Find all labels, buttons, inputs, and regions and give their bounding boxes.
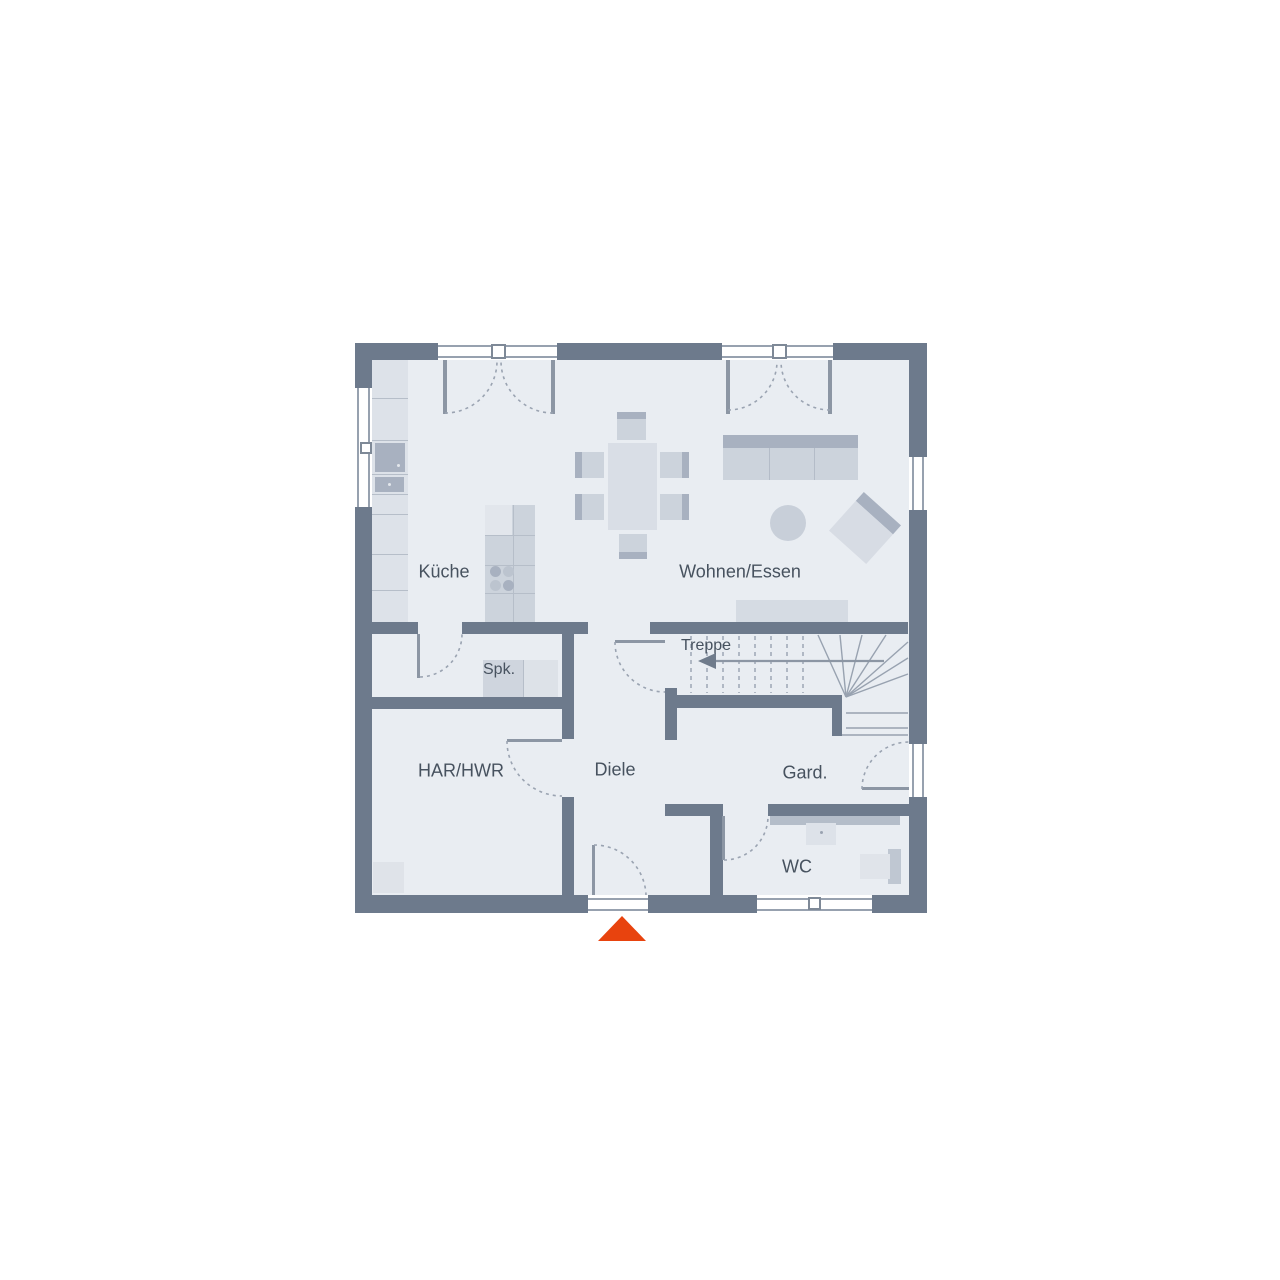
- wall-kitchen-spk-right: [462, 622, 588, 634]
- washing-machine: [373, 862, 404, 893]
- wall-top-middle: [557, 343, 722, 360]
- wall-kitchen-spk-left: [372, 622, 418, 634]
- room-label-kueche: Küche: [418, 562, 469, 583]
- room-label-spk: Spk.: [483, 661, 515, 679]
- wall-left-upper: [355, 343, 372, 388]
- wall-right-upper: [909, 343, 927, 457]
- floor-plan-page: Küche Wohnen/Essen Spk. Treppe HAR/HWR D…: [0, 0, 1280, 1280]
- washbasin-dot: [820, 831, 823, 834]
- french-door-1-jamb-right: [551, 360, 555, 414]
- room-label-wohnen-essen: Wohnen/Essen: [679, 562, 801, 583]
- room-label-wc: WC: [782, 857, 812, 878]
- wall-under-stairs: [672, 695, 832, 708]
- french-door-1-handle: [491, 344, 506, 359]
- wall-bottom-middle: [648, 895, 757, 913]
- wall-bottom-left: [355, 895, 588, 913]
- dining-chair-left-2: [575, 494, 604, 520]
- french-door-2-handle: [772, 344, 787, 359]
- dining-chair-right-1: [660, 452, 689, 478]
- gard-door-leaf: [862, 787, 909, 790]
- dining-chair-right-2: [660, 494, 689, 520]
- wall-bottom-right: [872, 895, 927, 913]
- drawer-dot: [388, 483, 391, 486]
- sofa: [723, 435, 858, 480]
- dining-chair-left-1: [575, 452, 604, 478]
- entrance-door-leaf: [592, 845, 595, 895]
- sideboard: [736, 600, 848, 622]
- cooktop-burner: [490, 566, 501, 577]
- room-label-treppe: Treppe: [681, 637, 731, 655]
- wall-har-right-upper: [562, 709, 574, 739]
- wall-right-middle: [909, 510, 927, 744]
- room-label-diele: Diele: [594, 760, 635, 781]
- french-door-2-jamb-left: [726, 360, 730, 414]
- coffee-table: [770, 505, 806, 541]
- toilet: [860, 854, 890, 879]
- kitchen-window-handle: [360, 442, 372, 454]
- french-door-2-jamb-right: [828, 360, 832, 414]
- dining-table: [608, 443, 657, 530]
- cooktop-burner: [503, 566, 514, 577]
- french-door-1-jamb-left: [443, 360, 447, 414]
- wall-stairs-top: [650, 622, 908, 634]
- wall-har-right-lower: [562, 797, 574, 895]
- wc-door-leaf: [722, 816, 725, 860]
- dining-chair-top: [617, 412, 646, 440]
- wall-stairs-corner: [832, 695, 842, 736]
- har-door-leaf: [507, 739, 562, 742]
- washbasin: [806, 823, 836, 845]
- room-label-gard: Gard.: [782, 763, 827, 784]
- wall-wc-top-right: [768, 804, 909, 816]
- wall-wc-top-left: [665, 804, 723, 816]
- dining-chair-bottom: [619, 534, 647, 559]
- cooktop-burner: [503, 580, 514, 591]
- spk-door-leaf: [417, 634, 420, 678]
- pantry-shelf-right: [523, 660, 558, 697]
- wall-har-top: [372, 697, 574, 709]
- wall-left-lower: [355, 507, 372, 895]
- oven-appliance: [375, 443, 405, 472]
- entrance-marker-triangle: [598, 916, 646, 941]
- room-label-har-hwr: HAR/HWR: [418, 761, 504, 782]
- treppe-door-leaf: [615, 640, 665, 643]
- oven-dot: [397, 464, 400, 467]
- cooktop-burner: [490, 580, 501, 591]
- kitchen-island-top-cell: [485, 505, 512, 535]
- wc-window-handle: [808, 897, 821, 910]
- wall-spk-diele: [562, 634, 574, 698]
